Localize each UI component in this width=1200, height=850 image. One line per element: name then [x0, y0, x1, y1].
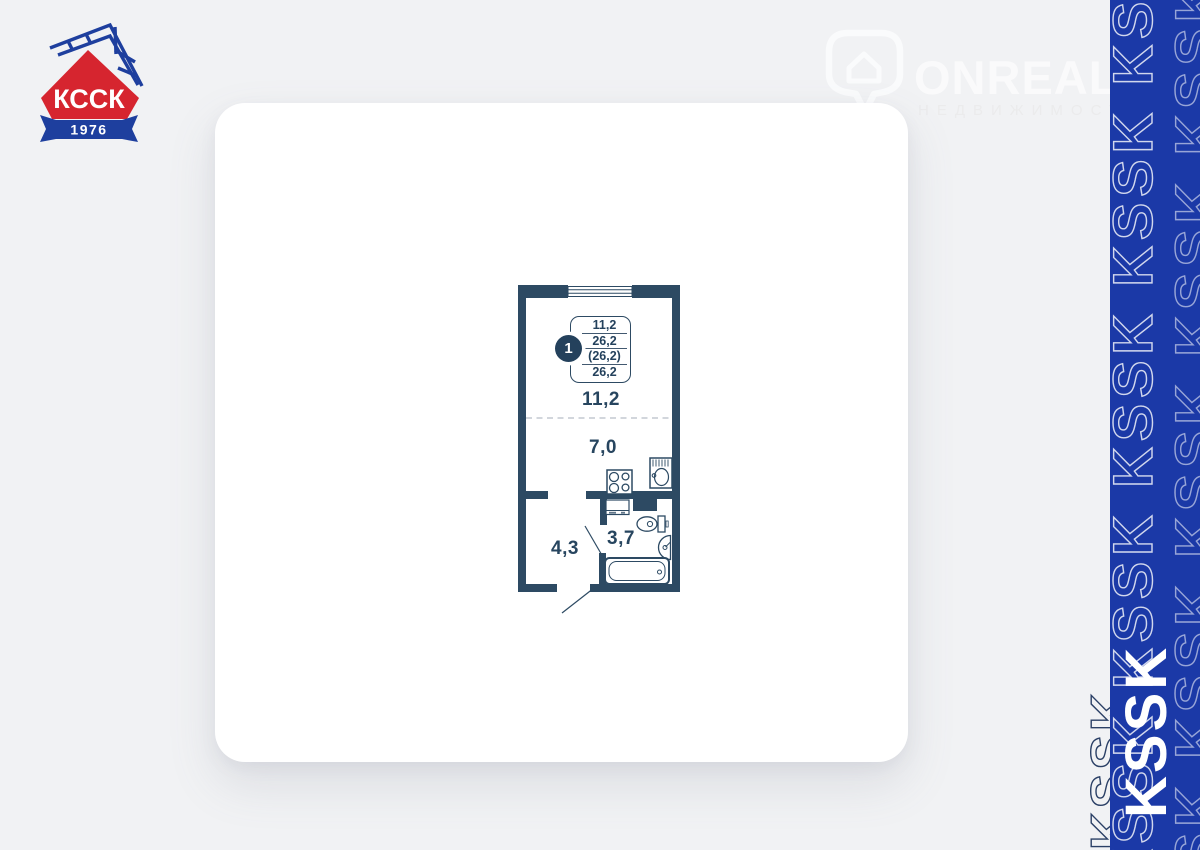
bathroom-area-label: 3,7 [586, 528, 656, 550]
unit-number-badge: 1 [555, 335, 582, 362]
kssk-side-banner: KSSK KSSK KSSK KSSK KSSK KSSK KSSK KSSK … [1110, 0, 1200, 850]
logo-name-text: КССК [53, 84, 125, 114]
ribbon-right-tail [122, 115, 138, 142]
kitchen-area-label: 7,0 [568, 437, 638, 459]
page-background: ONREALT НЕДВИЖИМОСТЬ KSSK KSSK KSSK KSSK… [0, 0, 1200, 850]
kssk-logo: КССК 1976 [38, 20, 156, 146]
living-room-area-label: 11,2 [566, 389, 636, 411]
window-icon [568, 285, 632, 298]
summary-total-area: 26,2 [582, 334, 627, 350]
summary-living-area: 11,2 [582, 318, 627, 334]
bathtub-icon [605, 558, 669, 584]
entrance-door-line [562, 588, 594, 613]
washing-machine-icon [606, 500, 629, 515]
stove-icon [607, 470, 632, 494]
kssk-solid-word: KSSK [1114, 645, 1179, 818]
kitchen-sink-icon [650, 458, 672, 488]
vent-shaft [633, 499, 657, 511]
ribbon-left-tail [40, 115, 56, 142]
summary-overall-area: 26,2 [582, 365, 627, 381]
logo-year-text: 1976 [70, 122, 107, 138]
floorplan: 11,2 26,2 (26,2) 26,2 1 11,2 7,0 4,3 3,7 [518, 285, 680, 617]
summary-reduced-area: (26,2) [582, 349, 627, 365]
floorplan-card: 11,2 26,2 (26,2) 26,2 1 11,2 7,0 4,3 3,7 [215, 103, 908, 762]
washbasin-icon [659, 536, 671, 560]
